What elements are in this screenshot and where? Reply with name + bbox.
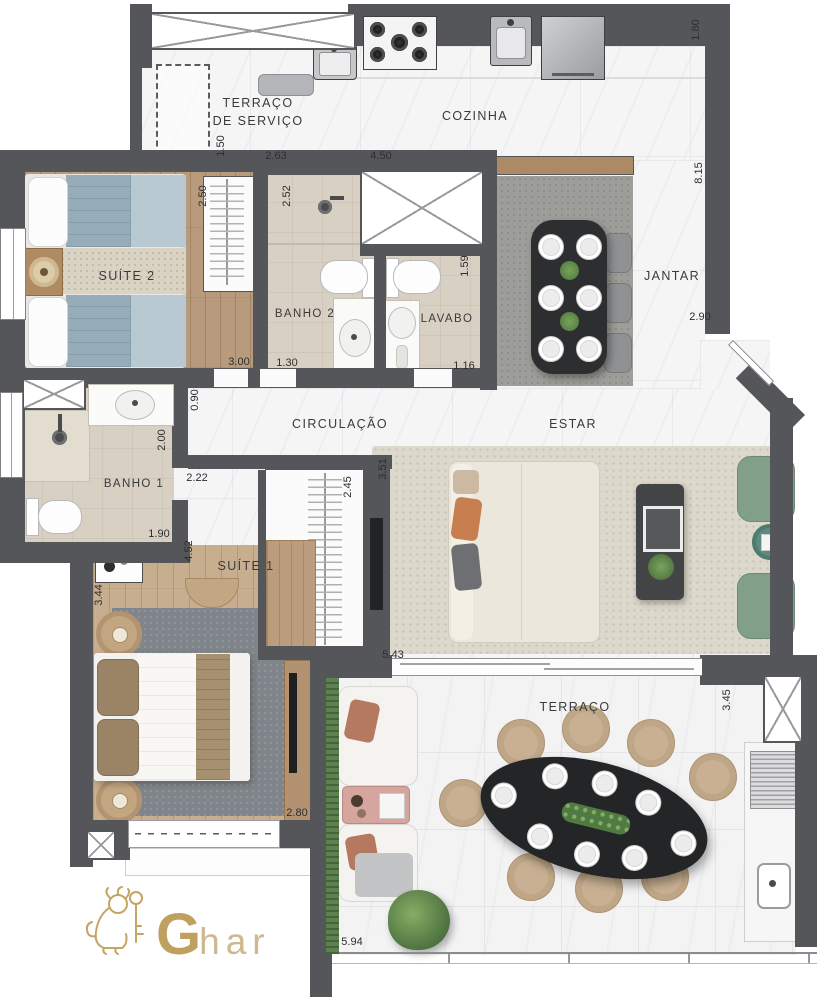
terrace-railing bbox=[330, 952, 817, 964]
bath2-toilet bbox=[320, 260, 368, 294]
sofa-pillow-orange bbox=[450, 496, 483, 541]
suite1-tv-panel bbox=[284, 660, 312, 827]
suite1-tv bbox=[289, 673, 297, 773]
dim-250: 2.50 bbox=[197, 185, 209, 206]
label-circulacao: CIRCULAÇÃO bbox=[292, 417, 388, 431]
terrace-chaise bbox=[355, 853, 413, 897]
dim-245: 2.45 bbox=[342, 476, 354, 497]
service-future-equipment-box bbox=[156, 64, 210, 156]
window-suite1 bbox=[128, 820, 280, 848]
dim-159: 1.59 bbox=[459, 255, 471, 276]
laundry-tank-basin bbox=[319, 52, 351, 76]
sofa-pillow-tan bbox=[453, 470, 479, 494]
dim-450: 4.50 bbox=[370, 150, 391, 162]
suite2-bed-2-pillow bbox=[28, 297, 68, 367]
label-jantar: JANTAR bbox=[644, 269, 700, 283]
shaft-box-top bbox=[150, 12, 356, 50]
suite2-lamp-center bbox=[40, 268, 48, 276]
suite1-pillow-2 bbox=[97, 719, 139, 776]
living-sofa bbox=[448, 461, 600, 643]
dim-222: 2.22 bbox=[186, 472, 207, 484]
dim-130: 1.30 bbox=[276, 357, 297, 369]
bath1-shower-arm bbox=[58, 414, 62, 432]
dim-263: 2.63 bbox=[265, 150, 286, 162]
wardrobe-hangers bbox=[210, 181, 244, 283]
terrace-table-runner bbox=[560, 800, 633, 836]
dim-252: 2.52 bbox=[281, 185, 293, 206]
coffee-table bbox=[636, 484, 684, 600]
dim-300: 3.00 bbox=[228, 356, 249, 368]
shaft-box-suite1 bbox=[86, 830, 116, 860]
dining-table bbox=[531, 220, 607, 374]
suite2-nightstand bbox=[25, 248, 63, 296]
label-terraco-servico-2: DE SERVIÇO bbox=[213, 114, 304, 128]
suite2-bed-2-throw bbox=[130, 295, 186, 367]
bath2-vanity bbox=[333, 298, 377, 374]
kitchen-peninsula-counter bbox=[487, 156, 634, 175]
dim-090: 0.90 bbox=[189, 389, 201, 410]
window-suite2 bbox=[0, 228, 26, 320]
shaft-box-bath2 bbox=[360, 170, 484, 246]
dim-344: 3.44 bbox=[93, 584, 105, 605]
dim-150: 1.50 bbox=[215, 135, 227, 156]
ghar-logo: Ghar bbox=[84, 886, 271, 958]
bath1-drain bbox=[132, 400, 138, 406]
bath1-vanity bbox=[88, 384, 174, 426]
terrace-sofa-2 bbox=[338, 824, 418, 902]
fridge bbox=[541, 16, 605, 80]
window-bath1 bbox=[0, 392, 23, 478]
bath1-shower bbox=[22, 410, 90, 482]
suite1-bed bbox=[94, 653, 250, 781]
terrace-hedge bbox=[326, 678, 339, 954]
suite2-wardrobe bbox=[203, 176, 257, 292]
dim-815: 8.15 bbox=[693, 162, 705, 183]
dining-centerpiece-1 bbox=[560, 261, 579, 280]
suite1-blanket bbox=[196, 654, 230, 780]
label-estar: ESTAR bbox=[549, 417, 597, 431]
grill bbox=[750, 751, 796, 809]
logo-text-har: har bbox=[199, 925, 270, 958]
suite2-bed-1-pillow bbox=[28, 177, 68, 247]
suite2-bed-1 bbox=[25, 174, 185, 248]
closet-wood-panel bbox=[266, 540, 316, 650]
dining-centerpiece-2 bbox=[560, 312, 579, 331]
suite1-pillow-1 bbox=[97, 659, 139, 716]
sliding-door-terrace bbox=[392, 658, 702, 676]
dim-345: 3.45 bbox=[721, 689, 733, 710]
label-terraco-servico-1: TERRAÇO bbox=[223, 96, 294, 110]
lion-key-icon bbox=[84, 886, 156, 958]
dim-351: 3.51 bbox=[377, 458, 389, 479]
suite1-nightstand-2 bbox=[96, 777, 142, 823]
lavabo-toilet bbox=[393, 260, 441, 294]
terrace-sink bbox=[757, 863, 791, 909]
service-shelf bbox=[258, 74, 314, 96]
label-suite1: SUÍTE 1 bbox=[217, 559, 274, 573]
bath2-shower-arm bbox=[330, 196, 344, 200]
grill-counter bbox=[744, 742, 800, 942]
floor-plan: TERRAÇO DE SERVIÇO COZINHA SUÍTE 2 BANHO… bbox=[0, 0, 817, 1000]
bath1-toilet bbox=[38, 500, 82, 534]
kitchen-sink-basin bbox=[496, 27, 526, 59]
sofa-pillow-gray bbox=[451, 543, 483, 592]
terrace-sofa-1 bbox=[338, 686, 418, 786]
label-banho2: BANHO 2 bbox=[275, 308, 335, 320]
bath2-drain bbox=[351, 334, 357, 340]
dim-116: 1.16 bbox=[453, 360, 474, 372]
cooktop bbox=[363, 16, 437, 70]
kitchen-faucet bbox=[507, 19, 514, 26]
bath2-shower-head bbox=[318, 200, 332, 214]
shaft-box-terrace bbox=[763, 675, 803, 743]
bath2-shower-line bbox=[268, 243, 374, 245]
dim-290: 2.90 bbox=[689, 311, 710, 323]
terrace-plant bbox=[388, 890, 450, 950]
lavabo-pedestal bbox=[396, 345, 408, 369]
dim-200: 2.00 bbox=[156, 429, 168, 450]
dim-543: 5.43 bbox=[382, 649, 403, 661]
kitchen-sink bbox=[490, 16, 532, 66]
kitchen-counter-edge bbox=[355, 77, 705, 79]
logo-letter-g: G bbox=[156, 912, 199, 958]
label-cozinha: COZINHA bbox=[442, 109, 508, 123]
suite1-nightstand-1 bbox=[96, 611, 142, 657]
terrace-table-card bbox=[379, 793, 405, 819]
shaft-box-bath1 bbox=[22, 378, 86, 410]
dim-452: 4.52 bbox=[183, 540, 195, 561]
bath1-shower-head bbox=[52, 430, 67, 445]
terrace-coffee-table bbox=[342, 786, 410, 824]
label-suite2: SUÍTE 2 bbox=[98, 269, 155, 283]
lavabo-sink-unit bbox=[384, 300, 420, 376]
dim-280: 2.80 bbox=[286, 807, 307, 819]
living-tv bbox=[370, 518, 383, 610]
label-terraco: TERRAÇO bbox=[540, 700, 611, 714]
label-banho1: BANHO 1 bbox=[104, 478, 164, 490]
suite1-duvet bbox=[137, 654, 199, 780]
terrace-pillow-1 bbox=[343, 698, 381, 743]
coffee-table-tray bbox=[643, 506, 683, 552]
suite2-bed-1-throw bbox=[130, 175, 186, 247]
dim-180: 1.80 bbox=[690, 19, 702, 40]
fridge-handle bbox=[552, 73, 594, 76]
dim-594: 5.94 bbox=[341, 936, 362, 948]
coffee-table-plant bbox=[648, 554, 674, 580]
label-lavabo: LAVABO bbox=[421, 313, 474, 325]
lavabo-basin bbox=[388, 307, 416, 339]
dim-190: 1.90 bbox=[148, 528, 169, 540]
window-sill-suite1 bbox=[125, 848, 317, 876]
suite2-bed-2 bbox=[25, 294, 185, 368]
